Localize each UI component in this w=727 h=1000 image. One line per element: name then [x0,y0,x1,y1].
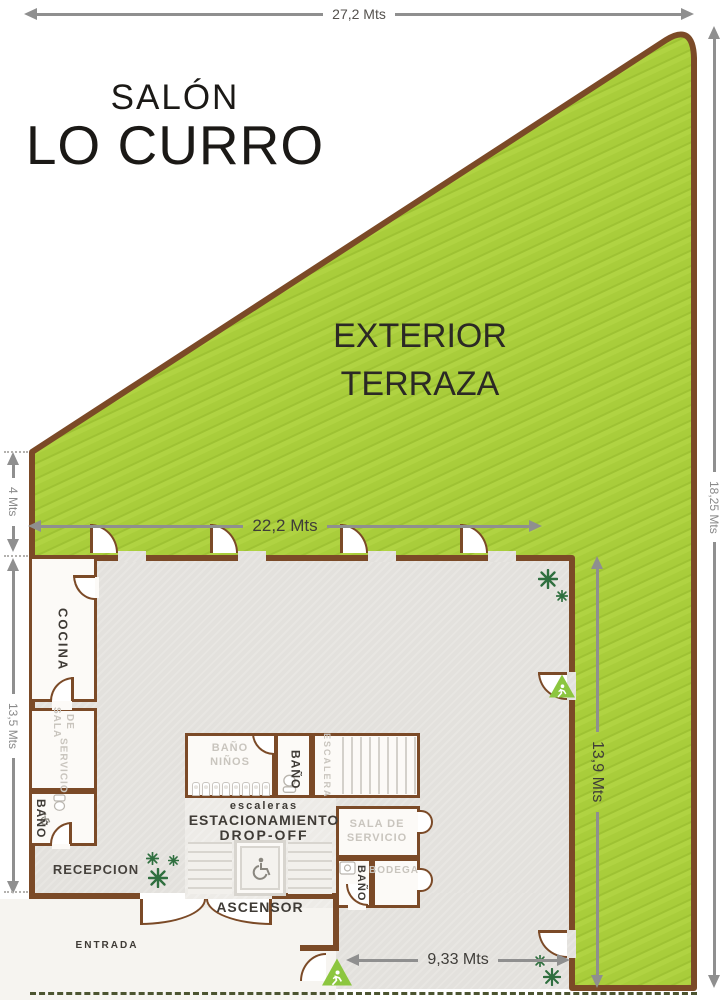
dimension-line [41,525,243,528]
dimension-terrace-height: 13,9 Mts [588,556,606,988]
arrowhead-down-icon [708,975,720,988]
sala-servicio-left-line2: SERVICIO [57,738,70,794]
kids-toilet-row [192,782,270,796]
arrowhead-up-icon [591,556,603,569]
dimension-bottom: 9,33 Mts [346,952,570,968]
dimension-right-outer: 18,25 Mts [705,26,723,988]
room-label-sala-servicio-right: SALA DE SERVICIO [338,817,416,845]
ascensor-shaft [234,840,286,896]
dimension-line [327,525,529,528]
dimension-terrace-width-label: 22,2 Mts [243,516,326,536]
arrowhead-left-icon [24,8,37,20]
dimension-line [713,39,716,472]
dimension-right-outer-label: 18,25 Mts [707,472,721,543]
dimension-line [12,526,15,539]
dimension-line [359,959,418,962]
escalera-steps [342,737,416,794]
room-label-sala-servicio-left: SALA DE SERVICIO [36,712,90,788]
dimension-line [12,465,15,478]
dimension-leader [4,451,28,453]
dimension-line [713,542,716,975]
arrowhead-left-icon [346,954,359,966]
room-label-escalera: ESCALERA [320,739,334,793]
arrowhead-up-icon [7,558,19,571]
recepcion-wall-left [29,893,140,899]
toilet-icon [262,782,270,796]
page-title: SALÓN LO CURRO [25,80,325,175]
dropoff-stairs-left [188,842,232,894]
room-label-bano-center: BAÑO [288,748,303,792]
dimension-leader [4,555,28,557]
top-door-gap [488,551,516,562]
plant-icon [146,852,159,865]
sala-servicio-right-line1: SALA DE [350,817,405,831]
dropoff-stairs-right [288,842,332,894]
plant-icon [168,855,179,866]
arrowhead-right-icon [557,954,570,966]
arrowhead-right-icon [681,8,694,20]
dimension-top: 27,2 Mts [24,6,694,22]
sala-servicio-right-line2: SERVICIO [347,831,407,845]
room-label-bano-ninos: BAÑO NIÑOS [187,740,273,770]
floor-plan-canvas: SALÓN LO CURRO EXTERIOR TERRAZA COCINA S… [0,0,727,1000]
property-line-bottom [30,992,697,995]
terrace-line1: EXTERIOR [300,312,540,360]
top-door-gap [368,551,396,562]
arrowhead-up-icon [708,26,720,39]
dimension-left-lower: 13,5 Mts [4,558,22,894]
terrace-label: EXTERIOR TERRAZA [300,312,540,408]
room-label-bano-left: BAÑO [33,797,49,841]
label-escaleras: escaleras [184,800,344,812]
arrowhead-up-icon [7,452,19,465]
room-label-entrada: ENTRADA [70,938,144,952]
sala-servicio-left-line1: SALA DE [50,707,76,738]
title-line2: LO CURRO [25,117,325,175]
arrowhead-left-icon [28,520,41,532]
dimension-left-upper: 4 Mts [4,452,22,552]
dimension-left-upper-label: 4 Mts [6,478,20,525]
toilet-icon [222,782,230,796]
terrace-line2: TERRAZA [300,360,540,408]
dimension-leader [4,891,28,893]
exit-person-icon [330,970,344,986]
room-label-cocina: COCINA [52,585,74,695]
top-door-gap [118,551,146,562]
dimension-line [498,959,557,962]
dimension-terrace-width: 22,2 Mts [28,518,542,534]
dimension-line [37,13,323,16]
dimension-left-lower-label: 13,5 Mts [6,694,20,758]
toilet-icon [202,782,210,796]
dimension-line [596,569,599,732]
plant-icon [556,590,568,602]
dimension-line [395,13,681,16]
label-estacionamiento: ESTACIONAMIENTO [174,813,354,827]
plant-icon [148,868,168,888]
room-label-ascensor: ASCENSOR [200,899,320,914]
toilet-icon [242,782,250,796]
toilet-icon [252,782,260,796]
bano-ninos-line2: NIÑOS [210,755,250,769]
room-label-bodega: BODEGA [366,864,422,876]
arrowhead-down-icon [7,539,19,552]
room-label-recepcion: RECEPCION [50,861,142,877]
arrowhead-right-icon [529,520,542,532]
bano-ninos-line1: BAÑO [212,741,248,755]
toilet-icon [192,782,200,796]
arrowhead-down-icon [591,975,603,988]
exit-person-icon [556,684,568,698]
dimension-top-label: 27,2 Mts [323,6,395,22]
ascensor-cab [240,846,280,890]
toilet-icon [52,794,68,812]
dimension-bottom-label: 9,33 Mts [418,951,497,969]
toilet-icon [212,782,220,796]
top-door-gap [238,551,266,562]
dimension-line [596,812,599,975]
dimension-terrace-height-label: 13,9 Mts [588,732,606,811]
toilet-icon [232,782,240,796]
wheelchair-icon [248,856,272,880]
dimension-line [12,758,15,881]
plant-icon [543,968,561,986]
title-line1: SALÓN [25,80,325,117]
plant-icon [538,569,558,589]
label-drop-off: DROP-OFF [184,828,344,842]
dimension-line [12,571,15,694]
